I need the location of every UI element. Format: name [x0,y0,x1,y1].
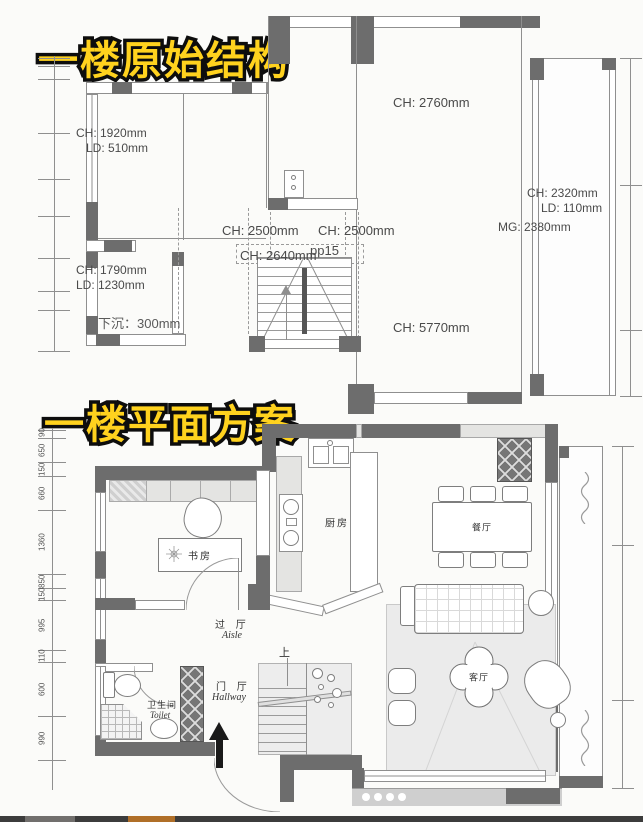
wall [135,600,185,610]
kitchen-island [350,452,378,592]
wall [468,392,522,404]
cabinet-hatch [109,480,147,502]
ruler-number: 850 [36,574,48,588]
dim-ld1230: LD: 1230mm [76,278,145,292]
dining-chair [438,486,464,502]
dim-ch2500a: CH: 2500mm [222,223,299,238]
terrace-dot [362,793,370,801]
stair-stringer [302,268,307,334]
wall-line [268,16,269,208]
wall-line [266,82,267,208]
wall [95,466,106,492]
wall-line [98,238,266,239]
balcony-rail [609,58,616,396]
wall [95,466,267,480]
ruler-tick [38,66,70,67]
ruler-number: 650 [36,438,48,462]
ruler-tick [620,330,642,331]
ruler-line [622,446,623,788]
ruler-tick [38,79,70,80]
ruler-tick [612,446,634,447]
wall-column [249,336,265,352]
window [364,770,546,782]
ruler-number: 150 [36,462,48,476]
wall-column [232,82,252,94]
wall [262,424,276,472]
ruler-number: 110 [36,650,48,662]
ruler-tick [620,396,642,397]
pouf [388,668,416,694]
dining-chair [470,486,496,502]
wall-column [530,58,544,80]
dim-ch2500b: CH: 2500mm [318,223,395,238]
dim-sunken: 下沉：300mm [98,313,180,332]
wall [95,598,135,610]
stair-up-label: 上 [279,644,290,660]
ruler-tick [38,133,70,134]
pebble-decor [314,696,321,703]
wall-column [530,374,544,396]
wall-column [602,58,616,70]
side-table [528,590,554,616]
ruler-number: 150 [36,588,48,600]
terrace-dot [374,793,382,801]
sink-basin [333,446,349,464]
wall-column [104,240,132,252]
stair-arrow-stem [286,294,287,340]
room-label-aisle-en: Aisle [222,630,242,641]
dim-ch1920: CH: 1920mm [76,126,147,140]
pebble-decor [327,674,335,682]
burner [283,499,299,515]
stair-arrow-head [281,285,291,294]
wall-column [351,16,374,64]
video-progress-bar[interactable] [0,816,643,822]
sofa [414,584,524,634]
wall [280,752,294,802]
dim-ld110: LD: 110mm [541,201,602,215]
chamfer-wall [264,594,325,616]
ruler-number: 990 [36,716,48,760]
stair-arrow-line [287,658,288,686]
wall [559,776,603,788]
dining-chair [502,552,528,568]
ruler-tick [612,545,634,546]
pebble-decor [328,702,334,708]
wall-column [339,336,361,352]
ruler-number: 995 [36,600,48,650]
dim-pp15: pp15 [310,243,339,258]
wall [506,788,560,804]
wall-line [521,16,522,402]
bathroom-sink [150,718,178,739]
dim-ch2320: CH: 2320mm [527,186,598,200]
room-label-toilet-en: Toilet [150,710,170,720]
progress-segment-orange [128,816,175,822]
fixture-knob [291,175,296,180]
cabinet-column [180,666,204,742]
ruler-tick [38,179,70,180]
side-table-small [550,712,566,728]
toilet-bowl [114,674,141,697]
ruler-tick [38,58,70,59]
wall-column [268,16,290,64]
ruler-number: 600 [36,662,48,716]
room-label-living: 客厅 [469,671,489,684]
faucet [327,440,333,446]
wall [95,552,106,578]
ruler-tick [620,58,642,59]
fixture-knob [291,185,296,190]
dim-ld510: LD: 510mm [86,141,148,155]
progress-segment [25,816,75,822]
ruler-tick [38,760,66,761]
wall [362,424,460,438]
ruler-number: 1360 [36,510,48,574]
room-label-kitchen: 厨房 [325,515,349,530]
terrace-dot [386,793,394,801]
ruler-line [54,56,55,351]
wall-column [268,198,288,210]
ruler-tick [38,351,70,352]
ruler-tick [38,216,70,217]
wall [256,470,270,556]
stove-panel [286,518,297,526]
ruler-tick [38,310,70,311]
wall-column [559,446,569,458]
entry-door-arc [214,758,280,812]
shower-area [100,704,142,740]
wall [268,424,356,438]
dim-ch1790: CH: 1790mm [76,263,147,277]
wall-column [348,384,374,414]
dining-chair [470,552,496,568]
curtain-squiggle [578,710,592,766]
stair-divider [306,663,307,755]
wall-column [248,584,270,610]
dim-ch5770: CH: 5770mm [393,320,470,335]
room-label-dining: 餐厅 [472,521,492,534]
wall [545,424,558,482]
curtain-squiggle [578,472,592,524]
wall [256,556,270,584]
wall [95,742,215,756]
dim-ch2640: CH: 2640mm [240,248,317,263]
room-label-hallway-zh: 门 厅 [216,678,251,693]
ruler-tick [620,185,642,186]
wall-column [96,334,120,346]
wall [374,392,468,404]
north-arrow-head [209,722,229,740]
dining-chair [438,552,464,568]
pouf [388,700,416,726]
ruler-tick [612,788,634,789]
burner [283,530,299,546]
ruler-number: 90 [36,428,48,438]
door-leaf [238,558,239,610]
ruler-tick [612,700,634,701]
ruler-tick [38,291,70,292]
compass-icon [166,546,182,562]
pebble-decor [318,684,324,690]
pebble-decor [312,668,323,679]
ruler-tick [38,258,70,259]
ruler-line [630,58,631,396]
wall [460,16,540,28]
door-arc [186,558,238,610]
room-label-hallway-en: Hallway [212,692,246,703]
room-label-aisle-zh: 过 厅 [215,616,250,631]
ruler-line [52,428,53,790]
terrace-dot [398,793,406,801]
pebble-decor [332,688,342,698]
sink-basin [313,446,329,464]
window [95,492,106,552]
plan-title-scheme: 一楼平面方案 [44,403,296,447]
shaft-column [497,438,532,482]
plan-title-original: 一楼原始结构 [38,39,290,83]
dim-ch2760: CH: 2760mm [393,95,470,110]
wall [460,424,546,438]
wall-column [352,768,364,788]
dining-chair [502,486,528,502]
wall-line [183,94,184,240]
ruler-number: 660 [36,476,48,510]
wall-column [112,82,132,94]
dim-mg2380: MG: 2380mm [498,220,571,234]
floor-plan-image: 一楼原始结构 [0,0,643,822]
